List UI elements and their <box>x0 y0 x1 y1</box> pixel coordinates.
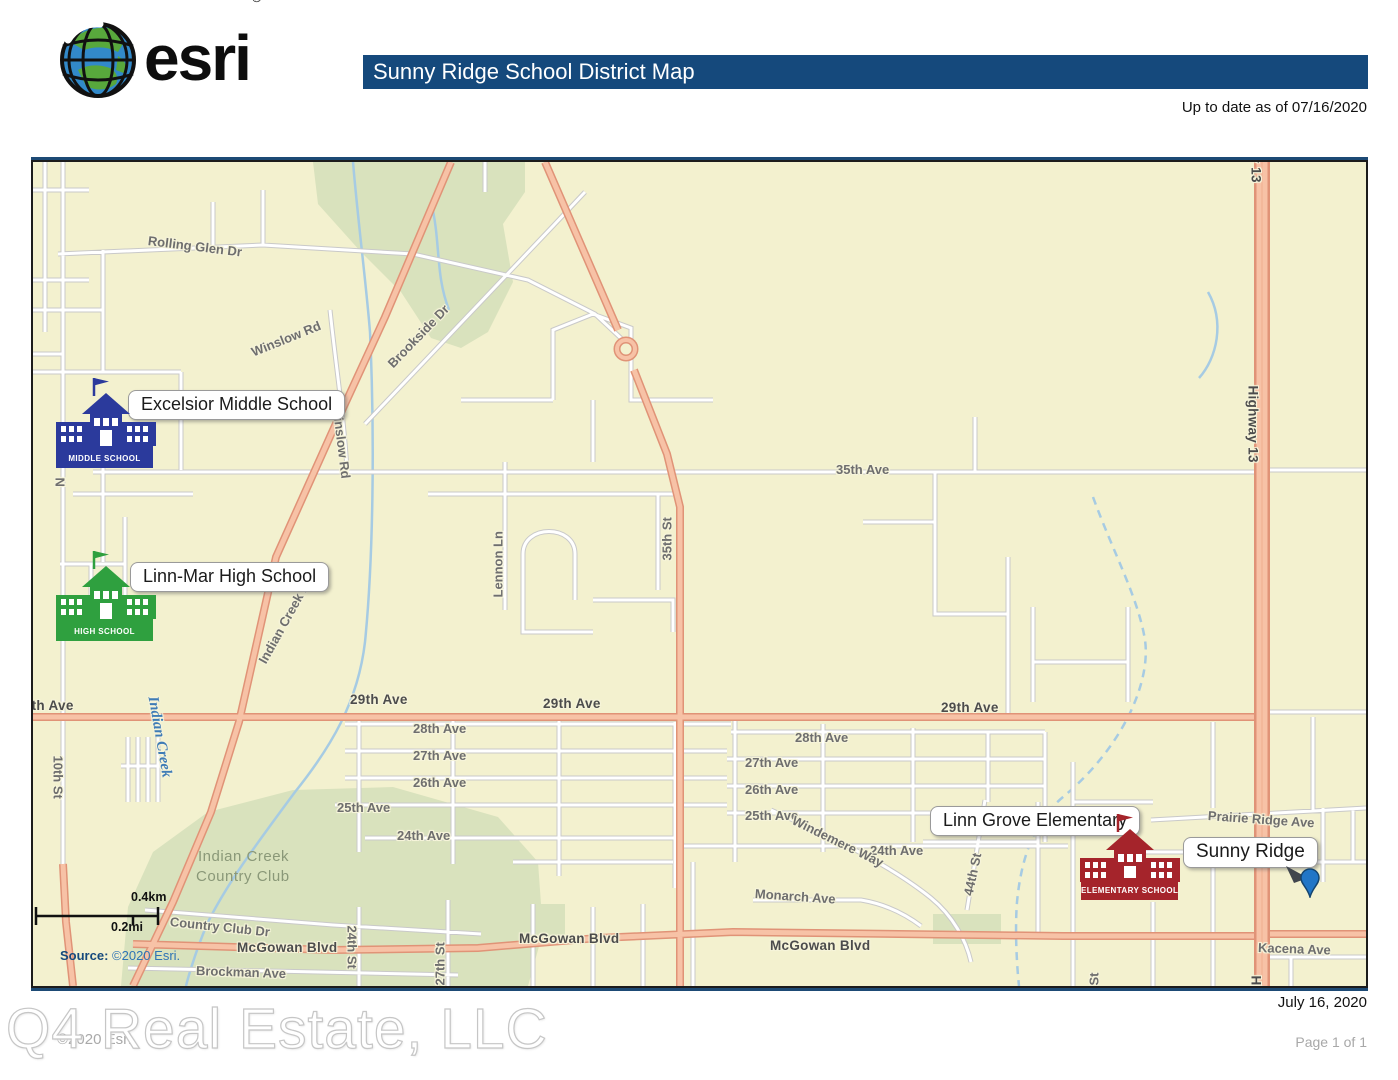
green-patch <box>933 914 1001 944</box>
road-label: 35th St <box>660 517 675 560</box>
road-label: Indian Creek <box>198 848 289 865</box>
map-canvas: Rolling Glen DrWinslow RdWinslow RdBrook… <box>33 162 1366 986</box>
road-label: Highway 13 <box>1249 976 1264 987</box>
road-label: 28th Ave <box>413 721 466 736</box>
road-label: N <box>53 478 68 487</box>
road-label: 24th St <box>345 926 360 969</box>
map-title-bar: Sunny Ridge School District Map <box>363 55 1368 89</box>
country-club-area <box>121 787 543 986</box>
road-label: 26th Ave <box>413 775 466 790</box>
road-label: Highway 13 <box>1246 386 1261 463</box>
source-text: ©2020 Esri. <box>112 948 180 963</box>
road-label: 27th Ave <box>413 748 466 763</box>
road-label: Country Club <box>196 868 290 885</box>
road-label: 29th Ave <box>543 696 601 711</box>
page: { "header": { "logo_text": "esri", "logo… <box>0 0 1398 1080</box>
scale-mi-label: 0.2mi <box>111 920 143 934</box>
road-label: 25th Ave <box>337 800 390 815</box>
map-frame: Rolling Glen DrWinslow RdWinslow RdBrook… <box>31 160 1368 988</box>
scale-km-label: 0.4km <box>131 890 166 904</box>
esri-globe-icon <box>58 18 138 100</box>
source-label: Source: <box>60 948 108 963</box>
update-note: Up to date as of 07/16/2020 <box>1182 99 1367 116</box>
callout-excelsior-middle-school: Excelsior Middle School <box>128 390 345 420</box>
road-label: 26th Ave <box>745 782 798 797</box>
road-label: 24th Ave <box>397 828 450 843</box>
watermark: Q4 Real Estate, LLC <box>6 996 548 1062</box>
high-school-banner: HIGH SCHOOL <box>56 619 153 641</box>
road-label: 27th St <box>433 942 448 985</box>
road-label: 10th St <box>51 756 66 799</box>
road-label: 25th Ave <box>745 808 798 823</box>
road-label: 29th Ave <box>941 700 999 715</box>
road-label: St <box>1087 973 1102 986</box>
road-label: 29th Ave <box>350 692 408 707</box>
middle-school-banner: MIDDLE SCHOOL <box>56 446 153 468</box>
road-label: McGowan Blvd <box>770 938 870 953</box>
road-label: 27th Ave <box>745 755 798 770</box>
esri-logo: esri ® <box>58 18 259 100</box>
road-label: Kacena Ave <box>1258 940 1331 958</box>
page-indicator: Page 1 of 1 <box>1295 1034 1367 1050</box>
road-label: 29th Ave <box>33 698 74 713</box>
road-label: Lennon Ln <box>491 531 506 597</box>
road-label: Highway 13 <box>1249 162 1264 183</box>
road-label: 35th Ave <box>836 462 889 477</box>
road-label: McGowan Blvd <box>237 940 337 955</box>
road-label: 28th Ave <box>795 730 848 745</box>
registered-mark: ® <box>252 0 262 5</box>
elementary-school-banner: ELEMENTARY SCHOOL <box>1081 878 1178 900</box>
road-label: Brockman Ave <box>196 963 287 981</box>
esri-logo-text: esri <box>144 18 250 98</box>
source-attribution: Source: ©2020 Esri. <box>60 948 180 963</box>
callout-sunny-ridge: Sunny Ridge <box>1183 837 1318 868</box>
sunny-ridge-pin-icon <box>1300 868 1320 898</box>
road-label: McGowan Blvd <box>519 931 619 946</box>
footer-date: July 16, 2020 <box>1278 994 1367 1011</box>
callout-linn-mar-high-school: Linn-Mar High School <box>130 562 329 592</box>
